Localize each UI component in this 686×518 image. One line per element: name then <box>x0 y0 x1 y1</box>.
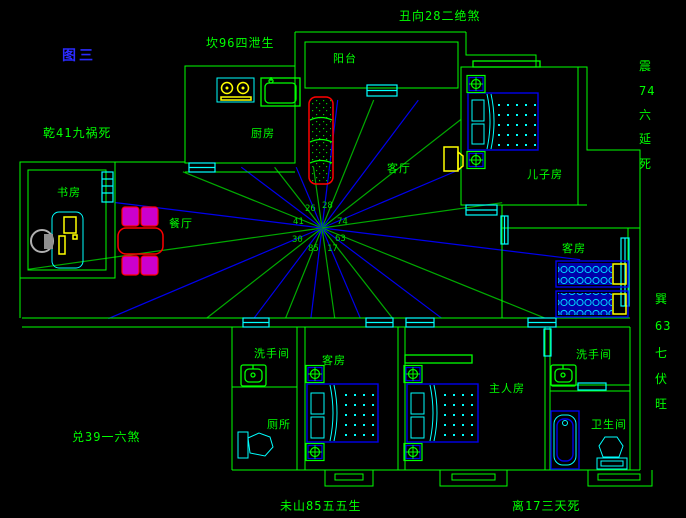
toilet-lower-left <box>238 432 273 458</box>
label-left-lower: 兑39一六煞 <box>72 430 140 444</box>
svg-text:六: 六 <box>639 108 652 122</box>
study-chair-seat <box>44 234 53 249</box>
nightstand <box>404 444 422 461</box>
room-label-balcony: 阳台 <box>333 51 357 65</box>
compass-number: 17 <box>327 244 338 254</box>
study-desk <box>31 212 83 268</box>
compass-number: 63 <box>335 234 346 244</box>
label-bottom-left: 未山85五五生 <box>280 499 361 513</box>
svg-text:延: 延 <box>639 132 652 146</box>
kitchen-wall <box>185 66 295 163</box>
room-label-living: 客厅 <box>387 161 411 175</box>
tv <box>444 147 463 171</box>
room-label-kitchen: 厨房 <box>251 127 275 140</box>
label-top: 丑向28二绝煞 <box>399 8 480 23</box>
svg-text:63: 63 <box>655 319 671 333</box>
room-label-son: 儿子房 <box>527 168 563 181</box>
toilet-bathroom <box>597 437 627 469</box>
computer <box>64 217 76 233</box>
room-label-dining: 餐厅 <box>169 216 193 230</box>
stove <box>217 78 254 102</box>
outer-walls <box>20 32 652 486</box>
son-bed <box>468 93 538 150</box>
svg-text:七: 七 <box>655 346 668 360</box>
nightstand <box>306 366 324 383</box>
room-label-study: 书房 <box>57 186 81 199</box>
room-label-guest-lower: 客房 <box>322 353 346 367</box>
svg-text:死: 死 <box>639 157 652 171</box>
room-label-guest-upper: 客房 <box>562 241 586 255</box>
dining-chair <box>141 207 158 226</box>
plant-screen <box>309 97 333 184</box>
bay-window <box>440 470 507 486</box>
dining-chair <box>141 256 158 275</box>
dining-chair <box>122 207 139 226</box>
nightstand <box>467 76 485 93</box>
nightstand <box>404 366 422 383</box>
bathtub <box>551 411 579 469</box>
guest-twin-beds <box>556 261 628 317</box>
compass-number: 41 <box>293 217 304 227</box>
bay-window <box>325 470 373 486</box>
svg-text:旺: 旺 <box>655 397 668 411</box>
compass-number: 30 <box>292 235 303 245</box>
nightstand <box>306 444 324 461</box>
svg-text:伏: 伏 <box>655 372 668 386</box>
label-right-lower: 巽 <box>655 292 668 306</box>
study-outer-wall <box>20 162 115 278</box>
dining-table <box>118 207 163 275</box>
study-door <box>102 172 113 202</box>
master-closet-shelf <box>405 355 472 363</box>
room-label-wash-left: 洗手间 <box>254 346 290 360</box>
compass-number: 74 <box>337 217 348 227</box>
label-bottom-right: 离17三天死 <box>512 498 580 513</box>
son-closet-shelf <box>473 61 540 67</box>
nightstand <box>467 152 485 169</box>
compass-number: 26 <box>305 204 316 214</box>
dining-chair <box>122 256 139 275</box>
label-top-left: 坎96四泄生 <box>206 36 274 50</box>
figure-label: 图三 <box>62 48 96 64</box>
guest-lower-bed <box>307 384 378 442</box>
sink-right <box>551 365 576 386</box>
sink-left <box>241 365 266 386</box>
room-label-master: 主人房 <box>489 382 525 395</box>
label-left-upper: 乾41九祸死 <box>43 125 111 140</box>
bath-door <box>578 383 606 390</box>
room-label-toilet: 厕所 <box>267 418 291 431</box>
label-right-upper: 震 <box>639 59 652 73</box>
master-bed <box>407 384 478 442</box>
compass-number: 85 <box>308 244 319 254</box>
balcony-wall <box>305 42 458 88</box>
kitchen-sink <box>261 77 300 106</box>
compass-line <box>108 228 322 319</box>
svg-text:74: 74 <box>639 84 655 98</box>
room-label-bathroom: 卫生间 <box>591 417 627 431</box>
floorplan-canvas: 图三 丑向28二绝煞 坎96四泄生 乾41九祸死 兑39一六煞 未山85五五生 … <box>0 0 686 518</box>
room-label-wash-right: 洗手间 <box>576 347 612 361</box>
compass-number: 28 <box>322 201 333 211</box>
